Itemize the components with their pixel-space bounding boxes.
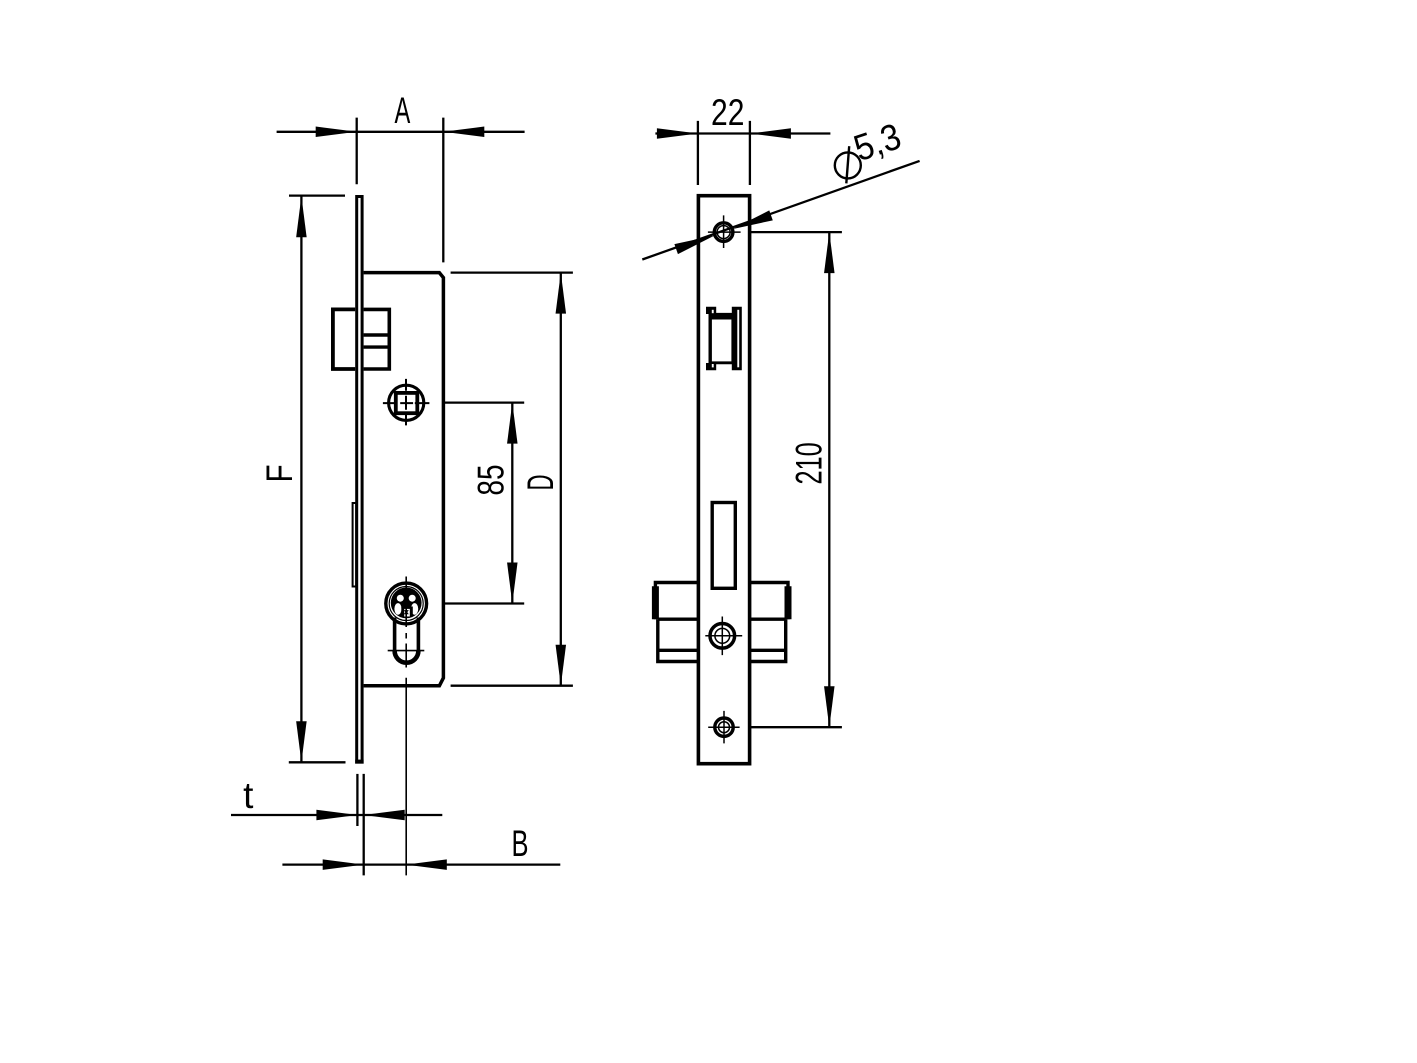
svg-text:22: 22 (711, 92, 744, 133)
svg-text:D: D (520, 475, 561, 491)
svg-text:A: A (395, 90, 411, 131)
svg-text:85: 85 (471, 464, 512, 495)
svg-text:210: 210 (789, 442, 830, 484)
svg-text:B: B (512, 823, 529, 864)
svg-text:F: F (259, 464, 300, 482)
svg-text:t: t (243, 775, 254, 816)
